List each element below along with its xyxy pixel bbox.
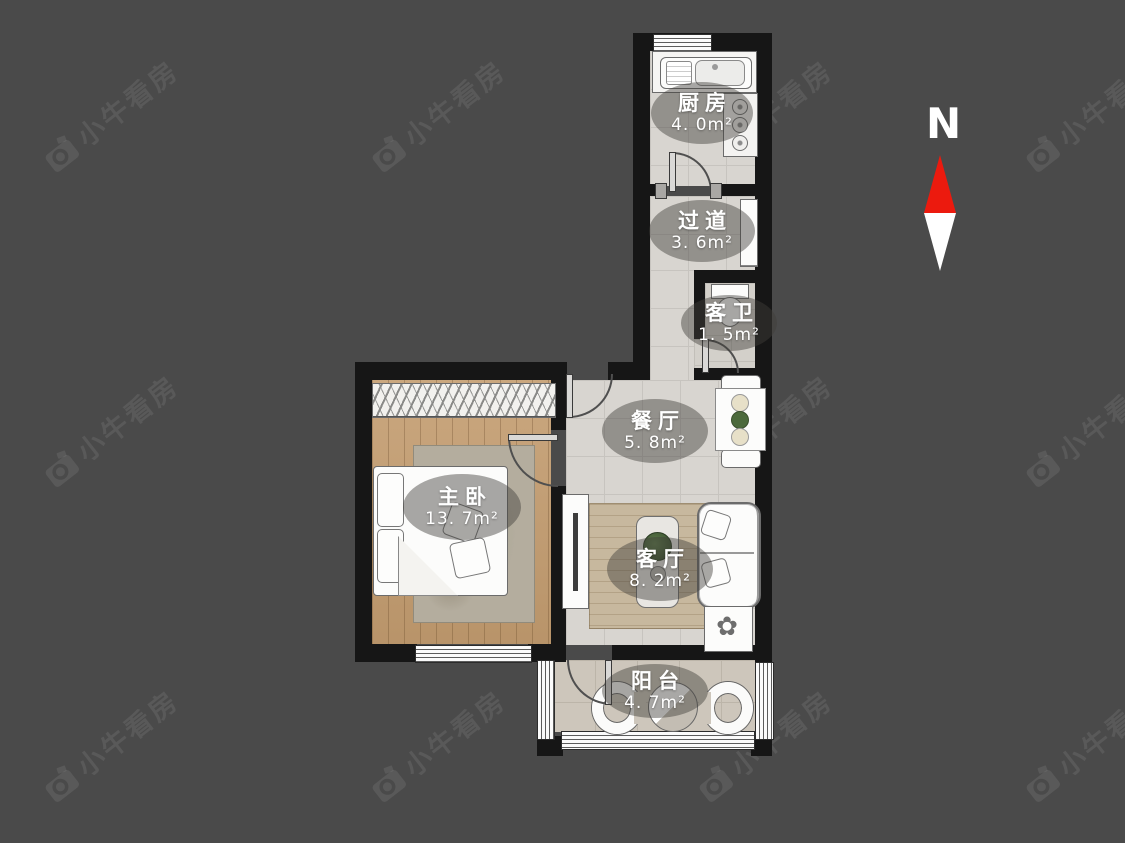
dining-plate xyxy=(731,394,749,412)
entrance-door-leaf xyxy=(566,374,573,418)
bedroom-window xyxy=(415,645,532,663)
room-name: 厨房 xyxy=(672,91,732,115)
wall-bedroom-left xyxy=(355,362,372,662)
stove-burner xyxy=(732,135,748,151)
camera-logo-icon xyxy=(38,131,83,176)
room-label-hallway: 过道 3. 6m² xyxy=(649,200,755,262)
north-arrow-up-icon xyxy=(924,155,956,213)
wall-entry-right xyxy=(608,362,650,380)
watermark: 小牛看房 xyxy=(362,50,513,180)
room-name: 阳台 xyxy=(625,669,685,693)
camera-logo-icon xyxy=(1019,761,1064,806)
kitchen-door-jamb xyxy=(655,183,667,199)
bed-pillow xyxy=(377,473,404,527)
balcony-window-left xyxy=(537,660,555,740)
watermark-text: 小牛看房 xyxy=(1048,50,1125,155)
room-name: 过道 xyxy=(672,209,732,233)
room-area: 3. 6m² xyxy=(671,233,733,253)
room-label-balcony: 阳台 4. 7m² xyxy=(602,664,708,718)
bedroom-wardrobe xyxy=(372,383,556,418)
watermark: 小牛看房 xyxy=(35,50,186,180)
room-name: 餐厅 xyxy=(625,409,685,433)
watermark-text: 小牛看房 xyxy=(67,680,186,785)
room-label-guest-bathroom: 客卫 1. 5m² xyxy=(681,295,777,351)
room-area: 13. 7m² xyxy=(425,509,499,529)
room-name: 主卧 xyxy=(432,485,492,509)
wall-bedroom-bottom xyxy=(355,644,417,662)
dining-chair-bottom xyxy=(721,449,761,468)
watermark: 小牛看房 xyxy=(35,365,186,495)
bedroom-door-leaf xyxy=(508,434,558,441)
watermark-text: 小牛看房 xyxy=(1048,365,1125,470)
bed-cushion xyxy=(449,537,492,580)
watermark: 小牛看房 xyxy=(35,680,186,810)
north-label: N xyxy=(926,103,961,145)
kitchen-door-leaf xyxy=(669,152,676,192)
watermark-text: 小牛看房 xyxy=(67,365,186,470)
room-label-kitchen: 厨房 4. 0m² xyxy=(651,82,753,144)
room-area: 8. 2m² xyxy=(629,571,691,591)
watermark: 小牛看房 xyxy=(1016,50,1125,180)
camera-logo-icon xyxy=(38,446,83,491)
kitchen-door-jamb xyxy=(710,183,722,199)
watermark-text: 小牛看房 xyxy=(1048,680,1125,785)
sink-drainboard xyxy=(666,61,692,85)
wall-wing-left xyxy=(633,33,650,380)
room-label-master-bedroom: 主卧 13. 7m² xyxy=(403,474,521,540)
camera-logo-icon xyxy=(692,761,737,806)
room-name: 客卫 xyxy=(699,301,759,325)
watermark-text: 小牛看房 xyxy=(394,680,513,785)
watermark: 小牛看房 xyxy=(1016,680,1125,810)
wall-hall-bath xyxy=(694,270,755,283)
dining-centerpiece-plant xyxy=(731,411,749,429)
room-area: 5. 8m² xyxy=(624,433,686,453)
watermark: 小牛看房 xyxy=(362,680,513,810)
sink-faucet xyxy=(712,64,718,70)
room-label-dining-room: 餐厅 5. 8m² xyxy=(602,399,708,463)
flower-icon: ✿ xyxy=(714,614,740,640)
wall-bedroom-top xyxy=(355,362,567,380)
camera-logo-icon xyxy=(1019,131,1064,176)
balcony-window-right xyxy=(755,662,774,740)
camera-logo-icon xyxy=(38,761,83,806)
camera-logo-icon xyxy=(365,131,410,176)
camera-logo-icon xyxy=(365,761,410,806)
camera-logo-icon xyxy=(1019,446,1064,491)
sofa-seat-divider xyxy=(700,552,754,554)
watermark-text: 小牛看房 xyxy=(67,50,186,155)
room-name: 客厅 xyxy=(630,547,690,571)
watermark-text: 小牛看房 xyxy=(394,50,513,155)
north-arrow-down-icon xyxy=(924,213,956,271)
room-area: 4. 7m² xyxy=(624,693,686,713)
room-area: 4. 0m² xyxy=(671,115,733,135)
kitchen-window xyxy=(653,34,712,52)
watermark: 小牛看房 xyxy=(1016,365,1125,495)
tv xyxy=(573,513,578,591)
dining-plate xyxy=(731,428,749,446)
floor-plan-canvas: 小牛看房 小牛看房 小牛看房 小牛看房 小牛看房 小牛看房 小牛看房 小牛看房 … xyxy=(0,0,1125,843)
room-area: 1. 5m² xyxy=(698,325,760,345)
room-label-living-room: 客厅 8. 2m² xyxy=(607,537,713,601)
